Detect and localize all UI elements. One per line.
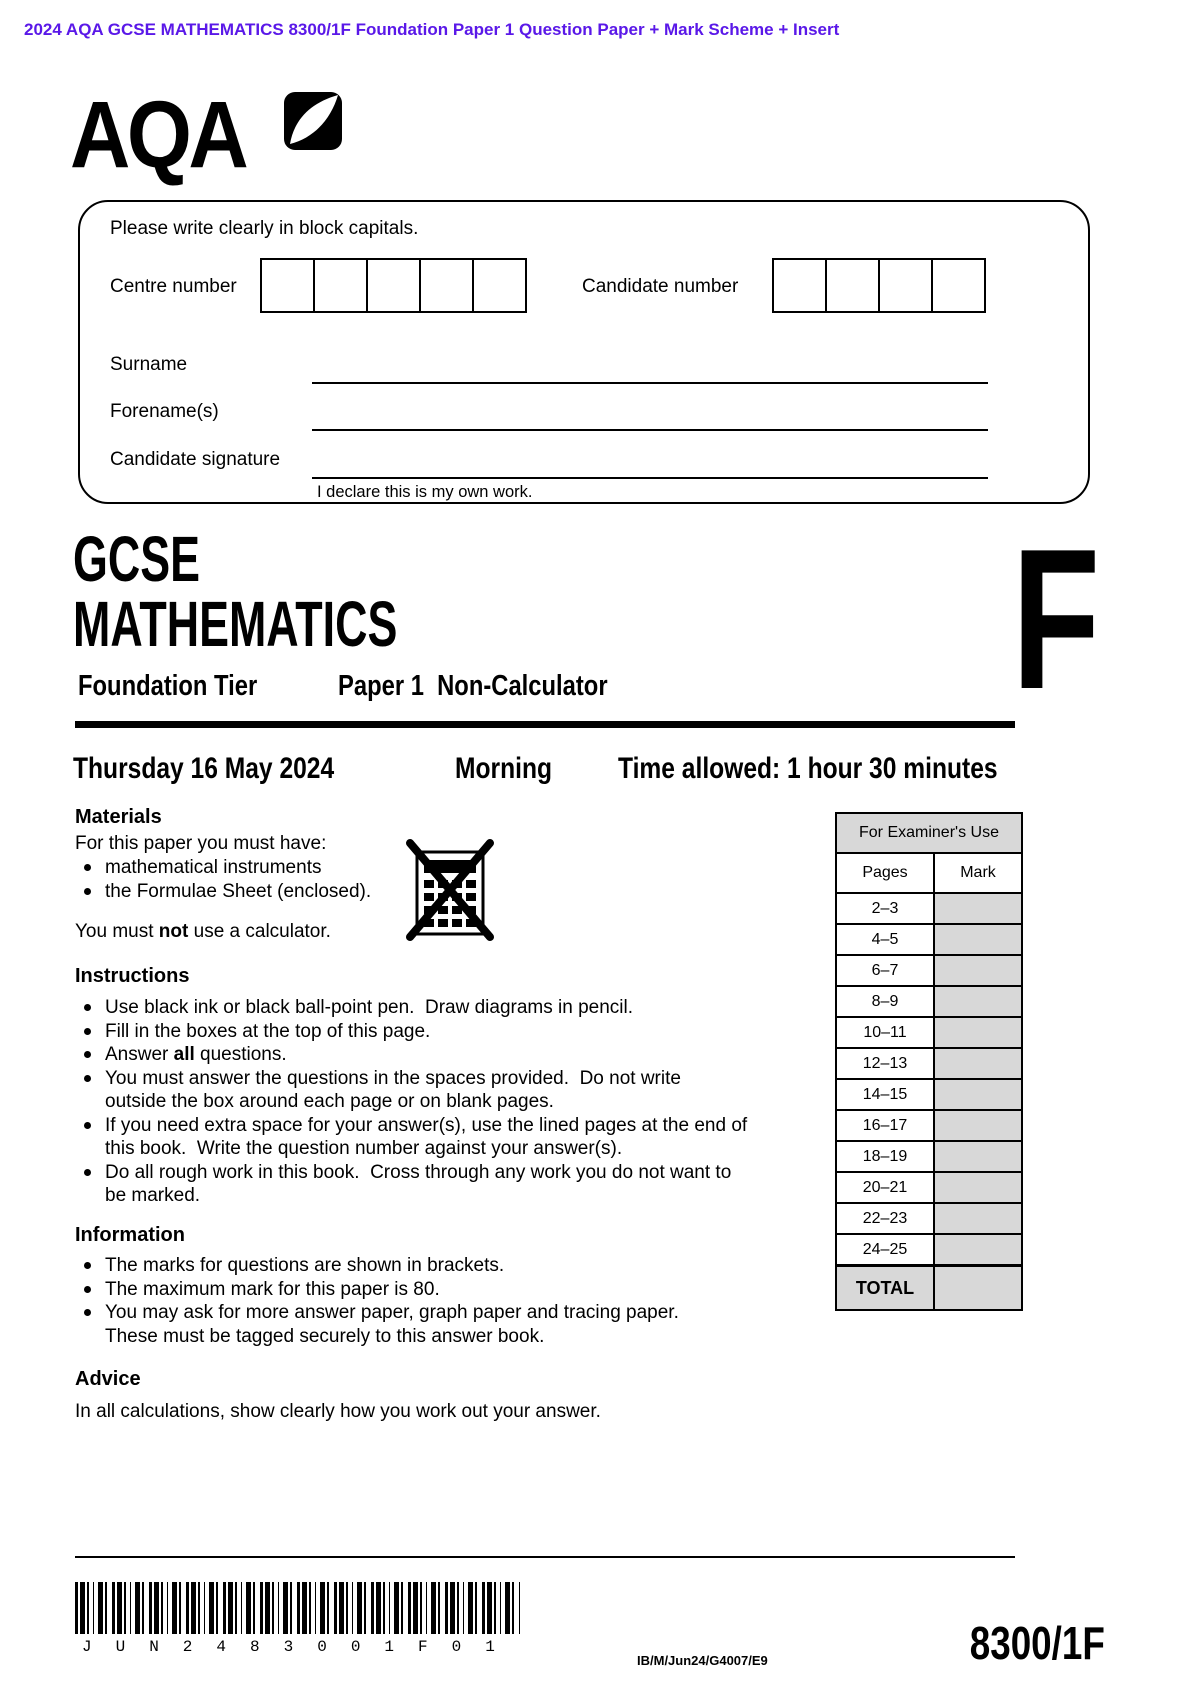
examiner-row: 2–3 [836,893,1022,924]
exam-session: Morning [455,754,552,784]
pages-cell: 22–23 [836,1203,934,1234]
pages-cell: 10–11 [836,1017,934,1048]
surname-label: Surname [110,354,187,376]
mark-cell [934,924,1022,955]
instruction-item: You must answer the questions in the spa… [75,1067,835,1114]
mark-cell [934,1203,1022,1234]
candidate-number-label: Candidate number [582,276,738,298]
pages-cell: 4–5 [836,924,934,955]
surname-line[interactable] [312,382,988,384]
advice-text: In all calculations, show clearly how yo… [75,1400,601,1424]
instruction-item: Fill in the boxes at the top of this pag… [75,1020,835,1044]
time-allowed: Time allowed: 1 hour 30 minutes [618,754,998,784]
pages-cell: 6–7 [836,955,934,986]
materials-item: the Formulae Sheet (enclosed). [75,880,405,904]
instructions-heading: Instructions [75,965,189,988]
information-item: The maximum mark for this paper is 80. [75,1278,835,1302]
information-item: You may ask for more answer paper, graph… [75,1301,835,1348]
mark-cell [934,1079,1022,1110]
examiner-row: 16–17 [836,1110,1022,1141]
exam-front-page: 2024 AQA GCSE MATHEMATICS 8300/1F Founda… [0,0,1191,1684]
pages-cell: 8–9 [836,986,934,1017]
materials-item: mathematical instruments [75,856,405,880]
centre-number-cell[interactable] [262,260,313,311]
instruction-item: If you need extra space for your answer(… [75,1114,835,1161]
footer-divider [75,1556,1015,1558]
examiner-row: 8–9 [836,986,1022,1017]
candidate-number-cell[interactable] [825,260,878,311]
paper-code: 8300/1F [970,1620,1105,1666]
forenames-label: Forename(s) [110,401,219,423]
calculator-note: You must not use a calculator. [75,920,331,944]
information-item: The marks for questions are shown in bra… [75,1254,835,1278]
advice-heading: Advice [75,1368,141,1391]
instruction-item: Answer all questions. [75,1043,835,1067]
materials-intro: For this paper you must have: [75,832,326,856]
centre-number-cells[interactable] [260,258,527,313]
ib-reference: IB/M/Jun24/G4007/E9 [637,1653,768,1668]
mark-cell [934,1110,1022,1141]
instruction-item: Use black ink or black ball-point pen. D… [75,996,835,1020]
barcode-image [75,1582,520,1634]
aqa-leaf-icon [284,92,342,155]
mark-column-header: Mark [934,853,1022,893]
qualification-title: GCSE [73,527,200,591]
mark-cell [934,1234,1022,1266]
information-heading: Information [75,1224,185,1247]
pages-cell: 12–13 [836,1048,934,1079]
pages-column-header: Pages [836,853,934,893]
total-mark-cell [934,1266,1022,1311]
pages-cell: 24–25 [836,1234,934,1266]
mark-cell [934,893,1022,924]
examiner-row: 18–19 [836,1141,1022,1172]
title-divider [75,721,1015,728]
paper-label: Paper 1 Non-Calculator [338,672,608,701]
examiner-total-row: TOTAL [836,1266,1022,1311]
examiner-use-table: For Examiner's Use Pages Mark 2–3 4–5 6–… [835,812,1023,1311]
declaration-note: I declare this is my own work. [317,483,532,502]
examiner-row: 4–5 [836,924,1022,955]
mark-cell [934,986,1022,1017]
candidate-number-cells[interactable] [772,258,986,313]
tier-letter: F [1012,520,1100,720]
mark-cell [934,1017,1022,1048]
no-calculator-icon [405,838,495,947]
pages-cell: 14–15 [836,1079,934,1110]
pages-cell: 16–17 [836,1110,934,1141]
candidate-details-box: Please write clearly in block capitals. … [78,200,1090,504]
examiner-row: 24–25 [836,1234,1022,1266]
centre-number-cell[interactable] [366,260,419,311]
aqa-logo-text: AQA [70,88,245,183]
examiner-row: 22–23 [836,1203,1022,1234]
forenames-line[interactable] [312,429,988,431]
candidate-number-cell[interactable] [931,260,984,311]
candidate-number-cell[interactable] [878,260,931,311]
barcode-text: JUN2483001F01 [82,1638,519,1656]
centre-number-cell[interactable] [472,260,525,311]
total-label: TOTAL [836,1266,934,1311]
mark-cell [934,955,1022,986]
signature-line[interactable] [312,477,988,479]
examiner-row: 14–15 [836,1079,1022,1110]
instruction-item: Do all rough work in this book. Cross th… [75,1161,835,1208]
mark-cell [934,1172,1022,1203]
examiner-row: 12–13 [836,1048,1022,1079]
examiner-table-title: For Examiner's Use [836,813,1022,853]
candidate-number-cell[interactable] [774,260,825,311]
pages-cell: 18–19 [836,1141,934,1172]
examiner-row: 10–11 [836,1017,1022,1048]
centre-number-label: Centre number [110,276,237,298]
centre-number-cell[interactable] [419,260,472,311]
examiner-row: 6–7 [836,955,1022,986]
signature-label: Candidate signature [110,449,280,471]
pages-cell: 2–3 [836,893,934,924]
examiner-row: 20–21 [836,1172,1022,1203]
pages-cell: 20–21 [836,1172,934,1203]
tier-label: Foundation Tier [78,672,257,701]
block-capitals-note: Please write clearly in block capitals. [110,218,418,240]
exam-date: Thursday 16 May 2024 [73,754,334,784]
mark-cell [934,1048,1022,1079]
subject-title: MATHEMATICS [73,592,397,656]
page-header-note: 2024 AQA GCSE MATHEMATICS 8300/1F Founda… [24,20,1164,40]
mark-cell [934,1141,1022,1172]
centre-number-cell[interactable] [313,260,366,311]
materials-heading: Materials [75,806,162,829]
